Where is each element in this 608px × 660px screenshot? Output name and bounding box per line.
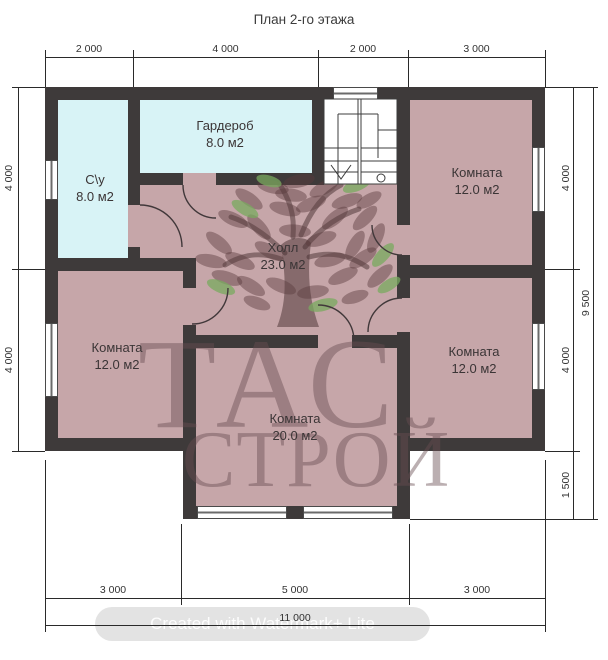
dim-tick bbox=[545, 269, 580, 270]
dim-label: 11 000 bbox=[245, 612, 345, 624]
dim-label: 4 000 bbox=[560, 148, 574, 208]
door-arc bbox=[140, 205, 182, 247]
floor-plan-page: План 2-го этажа bbox=[0, 0, 608, 660]
dim-label: 3 000 bbox=[45, 584, 181, 596]
dim-line-bottom bbox=[45, 598, 545, 599]
dim-line-top bbox=[45, 57, 545, 58]
dim-label: 1 500 bbox=[560, 455, 574, 515]
dim-tick bbox=[545, 451, 580, 452]
dim-tick bbox=[45, 50, 46, 87]
room-label-wardrobe: Гардероб 8.0 м2 bbox=[165, 118, 285, 152]
dim-tick bbox=[12, 87, 45, 88]
dim-tick bbox=[545, 50, 546, 87]
dim-label: 9 500 bbox=[580, 273, 594, 333]
room-label-bottom-center: Комната 20.0 м2 bbox=[235, 411, 355, 445]
staircase bbox=[324, 99, 397, 184]
room-label-top-right: Комната 12.0 м2 bbox=[417, 165, 537, 199]
dim-tick bbox=[410, 519, 598, 520]
dim-label: 2 000 bbox=[318, 43, 408, 55]
room-label-bathroom: С\у 8.0 м2 bbox=[50, 172, 140, 206]
dim-tick bbox=[45, 460, 46, 632]
dim-label: 3 000 bbox=[408, 43, 545, 55]
dim-label: 4 000 bbox=[560, 330, 574, 390]
dim-tick bbox=[408, 50, 409, 87]
dim-label: 5 000 bbox=[181, 584, 409, 596]
dim-label: 4 000 bbox=[3, 148, 17, 208]
dim-label: 4 000 bbox=[133, 43, 318, 55]
dim-tick bbox=[545, 460, 546, 632]
dim-label: 2 000 bbox=[45, 43, 133, 55]
dim-tick bbox=[133, 50, 134, 87]
room-label-hall: Холл 23.0 м2 bbox=[233, 240, 333, 274]
dim-label: 3 000 bbox=[409, 584, 545, 596]
dim-tick bbox=[12, 451, 45, 452]
dim-tick bbox=[318, 50, 319, 87]
dim-line-bottom-total bbox=[45, 625, 545, 626]
room-label-bottom-right: Комната 12.0 м2 bbox=[414, 344, 534, 378]
door-arc bbox=[183, 185, 216, 218]
dim-tick bbox=[12, 269, 45, 270]
room-label-bottom-left: Комната 12.0 м2 bbox=[57, 340, 177, 374]
dim-tick bbox=[545, 87, 598, 88]
dim-label: 4 000 bbox=[3, 330, 17, 390]
